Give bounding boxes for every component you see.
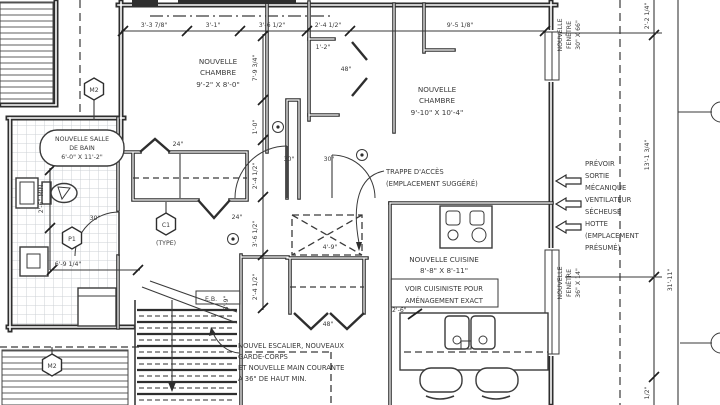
note-escalier: GARDE-CORPS (238, 353, 288, 361)
vanity-icon (16, 178, 38, 208)
note-fenetre-bas: FENÊTRE (564, 269, 573, 297)
room-salle-de-bain: 6'-0" X 11'-2" (61, 154, 103, 161)
note-mecanique: PRÉVOIR (585, 159, 615, 168)
room-salle-de-bain: DE BAIN (69, 145, 95, 152)
dim-top-1: 3'-3 7/8" (141, 22, 168, 29)
stool-icon (420, 368, 462, 399)
door-label-30: 30" (324, 156, 335, 163)
door-label-48: 48" (341, 66, 352, 73)
note-fenetre-haut: 30" X 66" (575, 20, 582, 50)
room-cuisine: 8'-8" X 8'-11" (420, 266, 468, 275)
note-escalier: ET NOUVELLE MAIN COURANTE (238, 364, 344, 372)
dim-chain-2: 1'-0" (252, 120, 259, 135)
dim-top-2: 3'-1" (206, 22, 221, 29)
note-mecanique: HOTTE (585, 220, 608, 228)
symbol-m2-label: M2 (47, 363, 56, 370)
door-label-24: 24" (232, 214, 243, 221)
note-escalier: NOUVEL ESCALIER, NOUVEAUX (238, 342, 344, 350)
dim-chain-1: 7'-9 3/4" (252, 55, 259, 82)
note-fenetre-bas: 36" X 14" (575, 268, 582, 298)
shower-icon (20, 247, 48, 276)
dim-right-1: 2'-2 1/4" (644, 3, 651, 30)
dim-bath-width: 6'-9 1/4" (55, 261, 82, 268)
note-trappe: (EMPLACEMENT SUGGÉRÉ) (386, 179, 478, 188)
room-chambre1: 9'-2" X 8'-0" (196, 80, 240, 89)
dim-clearance: 2'-6" MIN. (38, 183, 45, 213)
note-cuisiniste: AMÉNAGEMENT EXACT (405, 296, 484, 305)
dim-chain-3: 2'-4 1/2" (252, 163, 259, 190)
note-mecanique: VENTILATEUR (585, 196, 632, 204)
dim-top-4: 2'-4 1/2" (315, 22, 342, 29)
note-cuisiniste: VOIR CUISINISTE POUR (405, 285, 483, 293)
dim-hatch: 4'-9" (323, 244, 338, 251)
note-trappe: TRAPPE D'ACCÈS (385, 167, 444, 176)
floor-plan-sheet: 3'-3 7/8" 3'-1" 3'-6 1/2" 2'-4 1/2" 9'-5… (0, 0, 720, 405)
note-fenetre-haut: NOUVELLE (557, 18, 564, 51)
dim-chain-5: 2'-4 1/2" (252, 274, 259, 301)
dim-stair: 3'-9" (223, 296, 230, 311)
symbol-c1-label: C1 (162, 222, 170, 229)
room-chambre2: 9'-10" X 10'-4" (411, 108, 464, 117)
existing-structure-hatch-bottom (2, 350, 128, 405)
room-chambre1: NOUVELLE (199, 57, 238, 66)
symbol-m2-label: M2 (89, 87, 98, 94)
note-mecanique: (EMPLACEMENT (585, 232, 640, 240)
dim-top-3: 3'-6 1/2" (259, 22, 286, 29)
toilet-icon (42, 182, 77, 204)
room-chambre2: CHAMBRE (419, 96, 455, 105)
stove-icon (440, 206, 492, 248)
door-label-48: 48" (323, 321, 334, 328)
room-salle-de-bain: NOUVELLE SALLE (55, 136, 109, 143)
room-chambre2: NOUVELLE (418, 85, 457, 94)
note-mecanique: MÉCANIQUE (585, 183, 626, 192)
dim-counter: 2'-6" (392, 307, 407, 314)
note-fenetre-bas: NOUVELLE (557, 266, 564, 299)
dim-right-2: 13'-1 3/4" (644, 140, 651, 171)
stool-icon (476, 368, 518, 399)
dim-wall-jog: 1'-2" (316, 44, 331, 51)
note-escalier: À 36" DE HAUT MIN. (238, 374, 307, 383)
room-cuisine: NOUVELLE CUISINE (409, 255, 479, 264)
note-fenetre-haut: FENÊTRE (564, 21, 573, 49)
dim-chain-4: 3'-6 1/2" (252, 221, 259, 248)
note-mecanique: SORTIE (585, 172, 609, 180)
door-label-30: 30" (284, 156, 295, 163)
room-chambre1: CHAMBRE (200, 68, 236, 77)
washer-icon (78, 288, 116, 326)
dim-right-4: 1/2" (644, 386, 651, 399)
dim-top-5: 9'-5 1/8" (447, 22, 474, 29)
existing-structure-hatch-top (0, 2, 53, 104)
symbol-c1-type-label: (TYPE) (156, 240, 176, 247)
dim-right-3: 31'-11" (667, 269, 674, 292)
note-mecanique: PRÉSUMÉ) (585, 243, 621, 252)
door-label-30: 30" (90, 215, 101, 222)
exit-arrow-icon (556, 175, 581, 233)
door-label-text: 24" 24" 30" 30" 30" 48" 48" (90, 66, 352, 328)
door-label-24: 24" (173, 141, 184, 148)
note-mecanique: SÉCHEUSE (585, 207, 621, 216)
label-eb: E.B. (205, 296, 217, 303)
symbol-p1-label: P1 (68, 236, 76, 243)
